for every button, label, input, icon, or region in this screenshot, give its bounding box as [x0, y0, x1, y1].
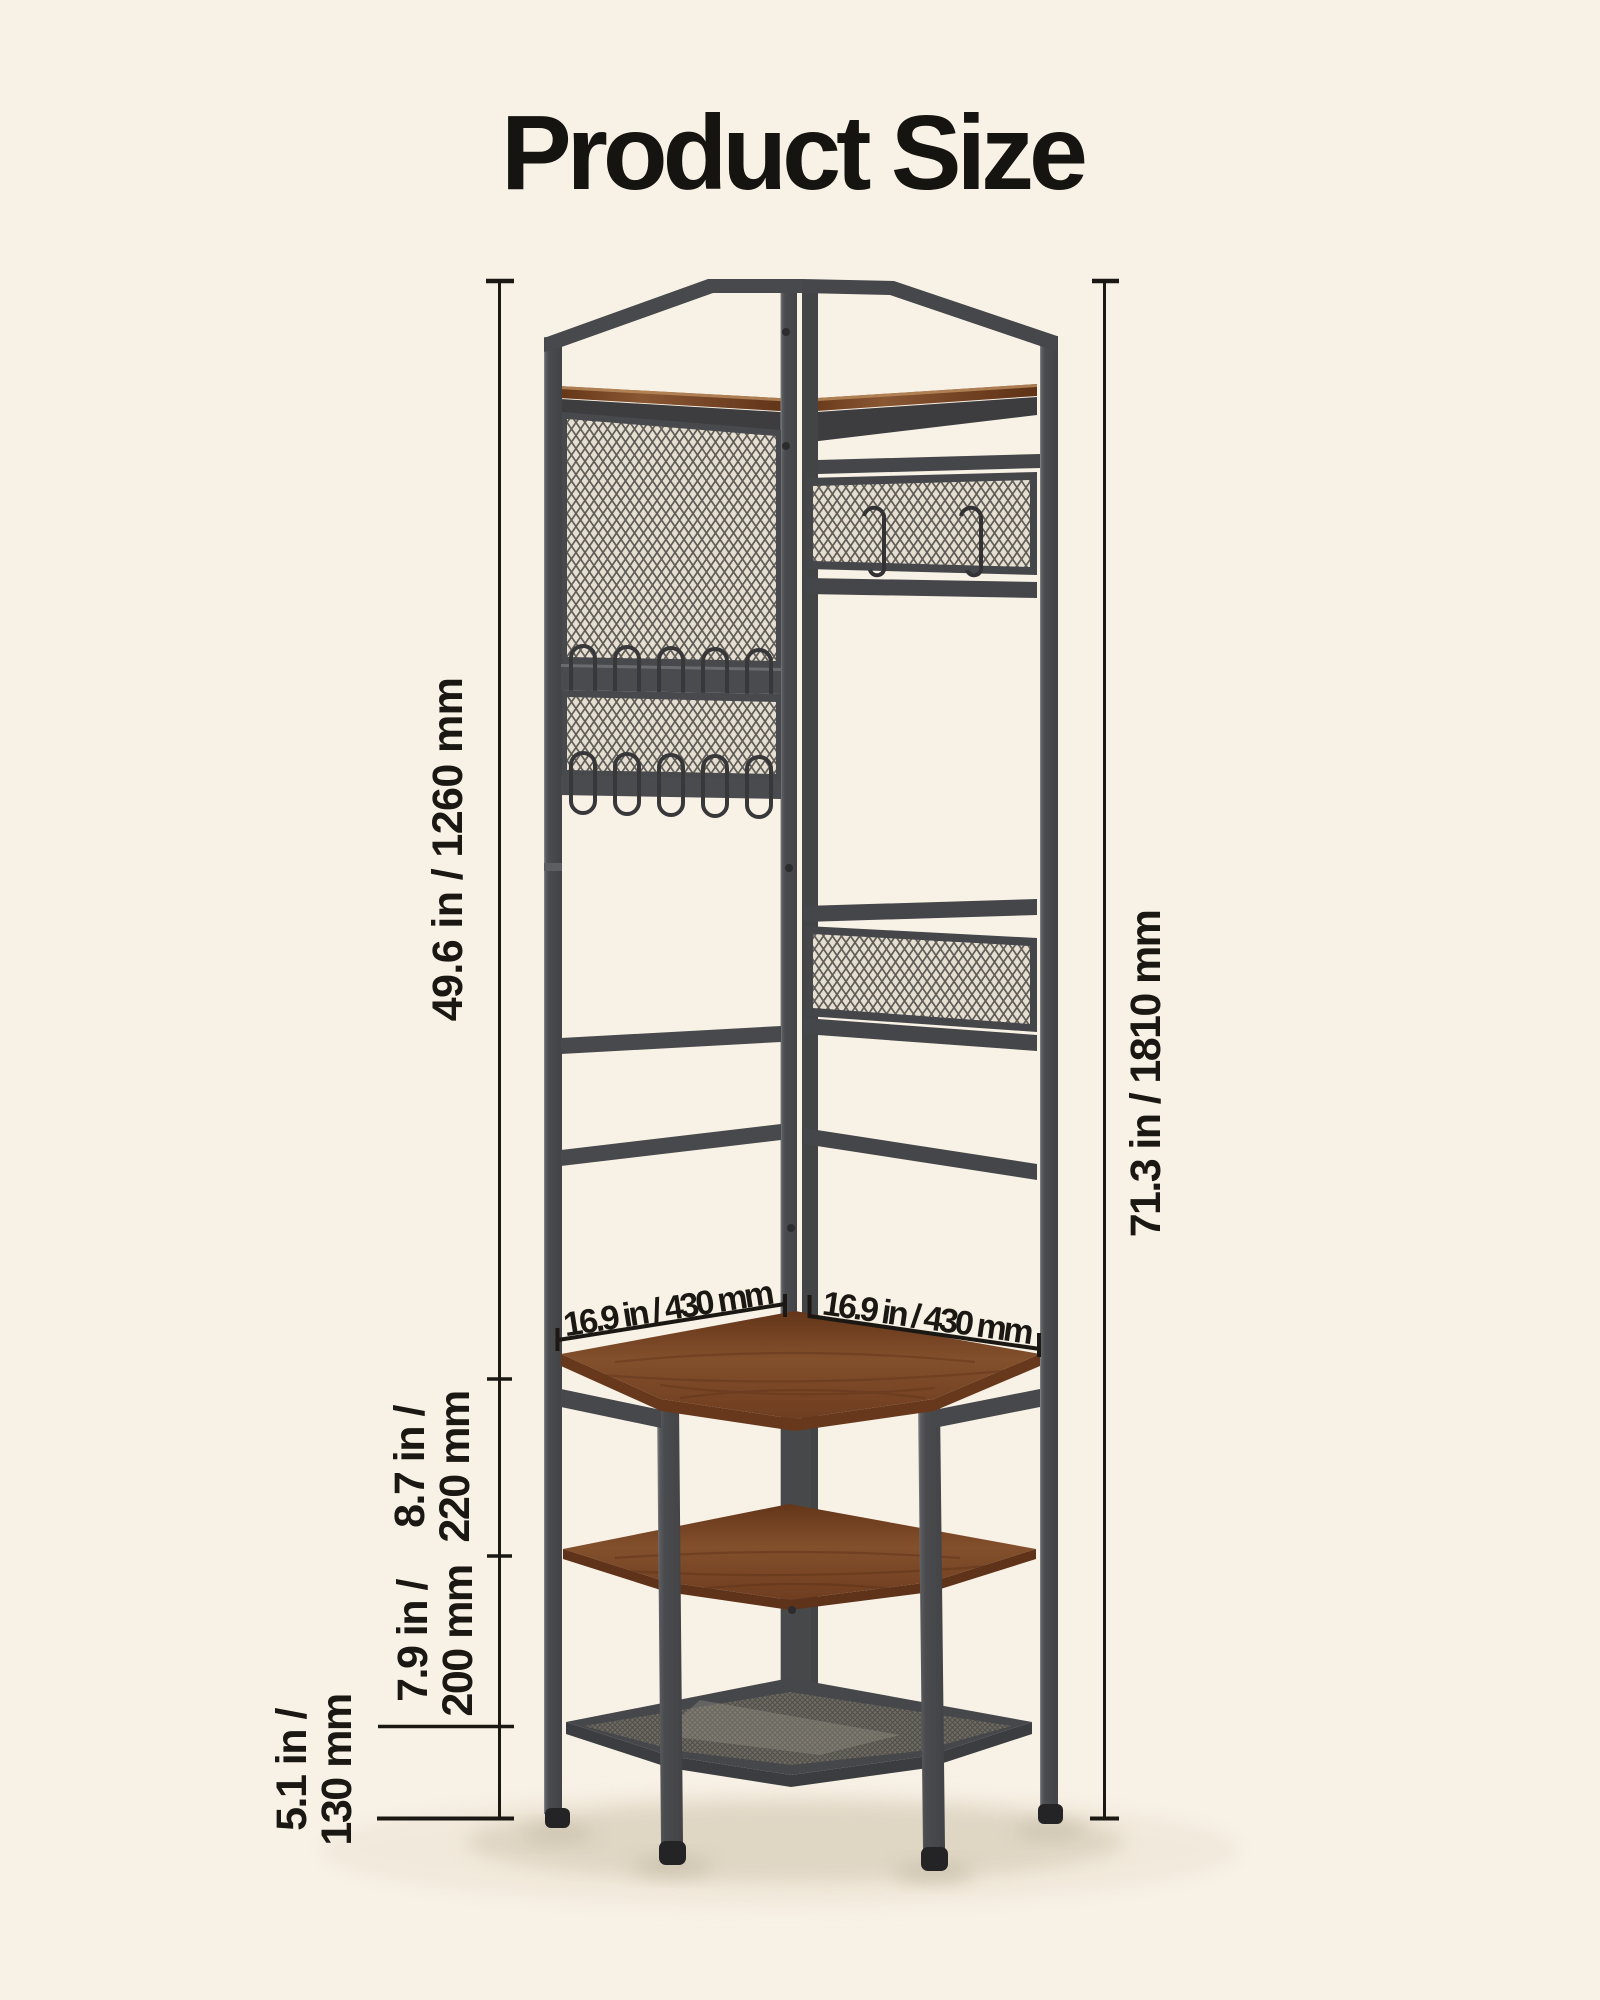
svg-text:71.3 in / 1810 mm: 71.3 in / 1810 mm [1122, 911, 1170, 1238]
svg-text:7.9 in /200 mm: 7.9 in /200 mm [389, 1565, 482, 1716]
svg-text:8.7 in /220 mm: 8.7 in /220 mm [386, 1391, 479, 1542]
svg-text:49.6 in / 1260 mm: 49.6 in / 1260 mm [424, 678, 472, 1022]
svg-text:5.1 in /130 mm: 5.1 in /130 mm [268, 1694, 361, 1845]
svg-text:Product Size: Product Size [501, 94, 1085, 212]
